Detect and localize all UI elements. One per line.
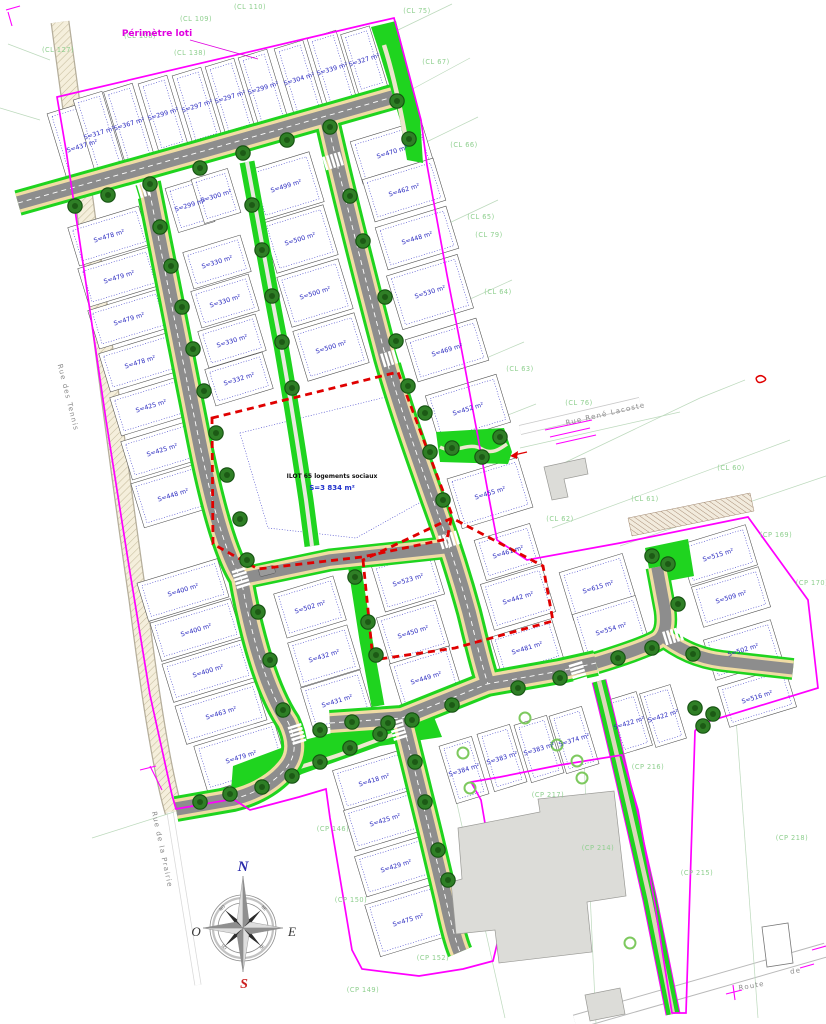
tree-icon — [436, 493, 450, 507]
tree-icon — [475, 450, 489, 464]
tree-icon — [255, 780, 269, 794]
tree-icon — [197, 384, 211, 398]
tree-icon — [255, 243, 269, 257]
tree-icon — [611, 651, 625, 665]
cadastral-parcel-label: (CP 150) — [335, 896, 367, 904]
tree-icon — [418, 795, 432, 809]
tree-icon — [423, 445, 437, 459]
cadastral-parcel-label: (CL 110) — [234, 3, 266, 11]
cadastral-parcel-label: (CP 170) — [796, 579, 826, 587]
tree-icon — [645, 641, 659, 655]
tree-icon — [193, 795, 207, 809]
tree-icon — [343, 189, 357, 203]
tree-icon — [361, 615, 375, 629]
tree-icon — [369, 648, 383, 662]
tree-icon — [101, 188, 115, 202]
cadastral-parcel-label: (CP 216) — [632, 763, 664, 771]
tree-icon — [68, 199, 82, 213]
ilot-surface: S=3 834 m² — [309, 484, 355, 492]
tree-icon — [153, 220, 167, 234]
tree-icon — [408, 755, 422, 769]
tree-icon — [263, 653, 277, 667]
site-plan-map: S=437 m²S=317 m²S=367 m²S=299 m²S=297 m²… — [0, 0, 826, 1024]
tree-icon — [445, 441, 459, 455]
tree-icon — [345, 715, 359, 729]
tree-icon — [240, 553, 254, 567]
tree-icon — [223, 787, 237, 801]
tree-icon — [696, 719, 710, 733]
compass-west-label: O — [191, 924, 201, 939]
tree-icon — [275, 335, 289, 349]
tree-icon — [389, 334, 403, 348]
tree-icon — [356, 234, 370, 248]
tree-icon — [706, 707, 720, 721]
cadastral-parcel-label: (CL 62) — [546, 515, 573, 523]
tree-icon — [441, 873, 455, 887]
tree-icon — [401, 379, 415, 393]
cadastral-parcel-label: (CL 79) — [475, 231, 502, 239]
cadastral-parcel-label: (CP 217) — [532, 791, 564, 799]
compass-north-label: N — [237, 859, 250, 875]
cadastral-parcel-label: (CP 169) — [760, 531, 792, 539]
cadastral-parcel-label: (CL 61) — [631, 495, 658, 503]
cadastral-parcel-label: (CL 109) — [180, 15, 212, 23]
tree-icon — [233, 512, 247, 526]
compass-south-label: S — [240, 977, 248, 992]
tree-icon — [236, 146, 250, 160]
cadastral-parcel-label: (CP 149) — [347, 986, 379, 994]
tree-icon — [493, 430, 507, 444]
tree-icon — [285, 769, 299, 783]
cadastral-parcel-label: (CL 75) — [403, 7, 430, 15]
cadastral-parcel-label: (CL 67) — [422, 58, 449, 66]
cadastral-parcel-label: (CL 66) — [450, 141, 477, 149]
tree-icon — [323, 120, 337, 134]
tree-icon — [313, 755, 327, 769]
cadastral-parcel-label: (CL 60) — [717, 464, 744, 472]
ilot-title: ILOT 65 logements sociaux — [287, 473, 378, 480]
tree-icon — [175, 300, 189, 314]
tree-icon — [186, 342, 200, 356]
compass-east-label: E — [287, 924, 296, 939]
tree-icon — [276, 703, 290, 717]
tree-icon — [671, 597, 685, 611]
tree-icon — [193, 161, 207, 175]
tree-icon — [285, 381, 299, 395]
tree-icon — [553, 671, 567, 685]
cadastral-parcel-label: (CL 64) — [484, 288, 511, 296]
tree-icon — [245, 198, 259, 212]
tree-icon — [688, 701, 702, 715]
cadastral-parcel-label: (CL 65) — [467, 213, 494, 221]
tree-icon — [431, 843, 445, 857]
tree-icon — [164, 259, 178, 273]
cadastral-parcel-label: (CL 127) — [42, 46, 74, 54]
tree-icon — [280, 133, 294, 147]
tree-icon — [265, 289, 279, 303]
cadastral-parcel-label: (CL 63) — [506, 365, 533, 373]
cadastral-parcel-label: (CP 146) — [317, 825, 349, 833]
cadastral-parcel-label: (CP 218) — [776, 834, 808, 842]
cadastral-parcel-label: (CP 152) — [417, 954, 449, 962]
tree-icon — [645, 549, 659, 563]
tree-icon — [313, 723, 327, 737]
tree-icon — [418, 406, 432, 420]
tree-icon — [220, 468, 234, 482]
cadastral-parcel-label: (CP 215) — [681, 869, 713, 877]
tree-icon — [402, 132, 416, 146]
cadastral-parcel-label: (CP 214) — [582, 844, 614, 852]
tree-icon — [390, 94, 404, 108]
tree-icon — [348, 570, 362, 584]
perimeter-label: Périmètre loti — [122, 28, 192, 39]
tree-icon — [209, 426, 223, 440]
tree-icon — [445, 698, 459, 712]
building-outline — [762, 923, 793, 967]
tree-icon — [251, 605, 265, 619]
tree-icon — [343, 741, 357, 755]
tree-icon — [378, 290, 392, 304]
cadastral-parcel-label: (CL 76) — [565, 399, 592, 407]
cadastral-parcel-label: (CL 138) — [174, 49, 206, 57]
tree-icon — [143, 177, 157, 191]
tree-icon — [686, 647, 700, 661]
tree-icon — [405, 713, 419, 727]
tree-icon — [373, 727, 387, 741]
tree-icon — [511, 681, 525, 695]
tree-icon — [661, 557, 675, 571]
